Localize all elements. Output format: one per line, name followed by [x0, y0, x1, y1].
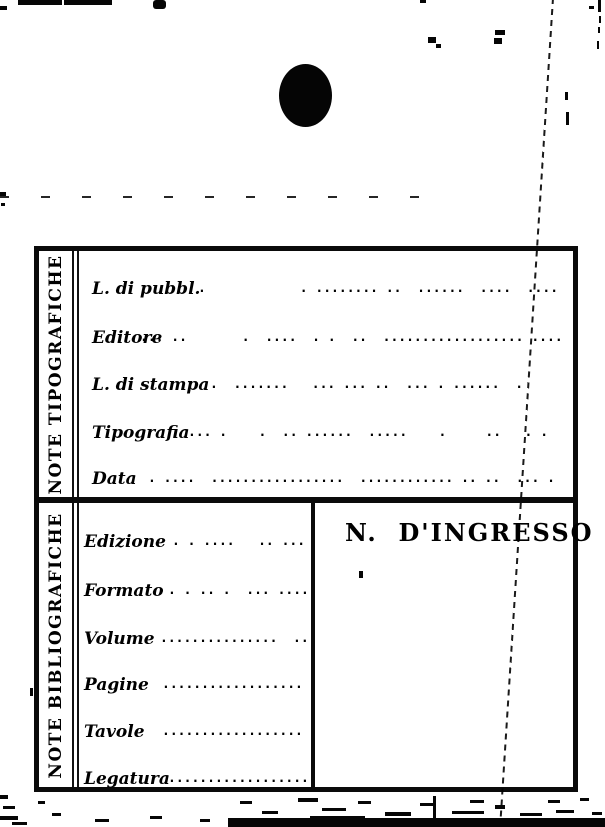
scan-noise-speck	[494, 38, 502, 44]
field-label: Tavole	[84, 719, 145, 745]
field-label: Data	[92, 466, 137, 492]
field-label: Formato	[84, 578, 164, 604]
scan-noise-speck	[359, 571, 363, 578]
scan-noise-speck	[433, 796, 436, 818]
scan-noise-speck	[95, 819, 109, 822]
field-row-luogo-di-pubblicazione: L. di pubbl. . . ........ .. ...... ....…	[92, 276, 572, 302]
field-row-luogo-di-stampa: L. di stampa . ....... ... ... .. ... . …	[92, 372, 572, 398]
scan-noise-speck	[598, 27, 600, 33]
scan-noise-speck	[240, 801, 252, 804]
bottom-scan-edge-bar	[228, 818, 605, 827]
scan-noise-speck	[589, 6, 594, 9]
scan-noise-speck	[262, 811, 278, 814]
accession-number-label: N. D'INGRESSO	[345, 518, 560, 548]
scan-noise-speck	[436, 44, 441, 48]
field-row-pagine: Pagine ..................	[84, 672, 319, 698]
dotted-fill-line: ............... ..	[160, 626, 309, 652]
field-row-volume: Volume ............... ..	[84, 626, 319, 652]
dotted-fill-line: ... . . .. ...... ..... . .. . .	[188, 420, 548, 446]
field-label: L. di stampa	[92, 372, 209, 398]
section-side-label-bibliografiche: NOTE BIBLIOGRAFICHE	[41, 505, 72, 786]
scan-noise-speck	[30, 688, 33, 696]
field-row-editore: Editore ... .. . .... . . .. ...........…	[92, 325, 572, 351]
scan-noise-speck	[556, 810, 574, 813]
faint-dashed-scan-line	[0, 196, 444, 198]
dotted-fill-line: . ....... ... ... .. ... . ...... .	[210, 372, 523, 398]
scan-noise-speck	[153, 0, 166, 9]
scan-noise-speck	[470, 800, 484, 803]
scan-noise-speck	[592, 812, 602, 815]
scan-noise-speck	[322, 808, 346, 811]
scan-noise-speck	[428, 37, 436, 43]
section-side-label-tipografiche: NOTE TIPOGRAFICHE	[41, 252, 72, 497]
scan-noise-speck	[597, 41, 599, 49]
scan-noise-speck	[12, 822, 27, 825]
field-row-tavole: Tavole ..................	[84, 719, 319, 745]
scanned-catalog-card: NOTE TIPOGRAFICHE NOTE BIBLIOGRAFICHE L.…	[0, 0, 605, 827]
scan-noise-speck	[0, 192, 6, 196]
scan-noise-speck	[358, 801, 371, 804]
scan-noise-speck	[1, 203, 5, 206]
scan-noise-speck	[0, 816, 18, 820]
scan-noise-speck	[0, 795, 8, 799]
scan-noise-speck	[598, 0, 601, 12]
scan-noise-speck	[3, 806, 15, 809]
scan-noise-speck	[0, 6, 7, 10]
scan-noise-speck	[580, 798, 589, 801]
scan-noise-speck	[385, 812, 411, 816]
field-row-data: Data . .... ................. ..........…	[92, 466, 572, 492]
scan-noise-speck	[298, 798, 318, 802]
field-label: Legatura	[84, 766, 170, 792]
scan-noise-speck	[520, 813, 542, 816]
scan-noise-speck	[38, 801, 45, 804]
field-label: Volume	[84, 626, 155, 652]
dotted-fill-line: . . .... .. ...	[172, 529, 305, 555]
side-label-double-rule	[77, 251, 79, 787]
field-row-formato: Formato . . .. . ... ....	[84, 578, 319, 604]
dotted-fill-line: . . ........ .. ...... .... ....	[198, 276, 558, 302]
dotted-fill-line: ..................	[168, 766, 309, 792]
field-row-legatura: Legatura ..................	[84, 766, 319, 792]
dotted-fill-line: ..................	[162, 672, 303, 698]
field-label: L. di pubbl.	[92, 276, 200, 302]
scan-noise-speck	[495, 30, 505, 35]
scan-noise-speck	[52, 813, 61, 816]
dotted-fill-line: ..................	[162, 719, 303, 745]
field-row-edizione: Edizione . . .... .. ...	[84, 529, 319, 555]
dotted-fill-line: ... .. . .... . . .. .................. …	[140, 325, 563, 351]
field-label: Pagine	[84, 672, 149, 698]
dotted-fill-line: . . .. . ... ....	[168, 578, 309, 604]
scan-noise-speck	[64, 0, 112, 5]
scan-noise-speck	[495, 805, 505, 809]
scan-noise-speck	[548, 800, 560, 803]
scan-noise-speck	[599, 16, 601, 23]
scan-noise-speck	[452, 811, 484, 814]
scan-noise-speck	[565, 92, 568, 100]
dotted-fill-line: . .... ................. ............ ..…	[148, 466, 555, 492]
scan-noise-speck	[150, 816, 162, 819]
field-row-tipografia: Tipografia ... . . .. ...... ..... . .. …	[92, 420, 572, 446]
scan-noise-speck	[200, 819, 210, 822]
scan-noise-speck	[420, 0, 426, 3]
field-label: Tipografia	[92, 420, 190, 446]
scan-noise-speck	[566, 112, 569, 125]
hole-punch-mark	[279, 64, 332, 127]
section-divider-rule	[39, 497, 573, 503]
scan-noise-speck	[18, 0, 62, 5]
field-label: Edizione	[84, 529, 166, 555]
side-label-double-rule	[72, 251, 74, 787]
